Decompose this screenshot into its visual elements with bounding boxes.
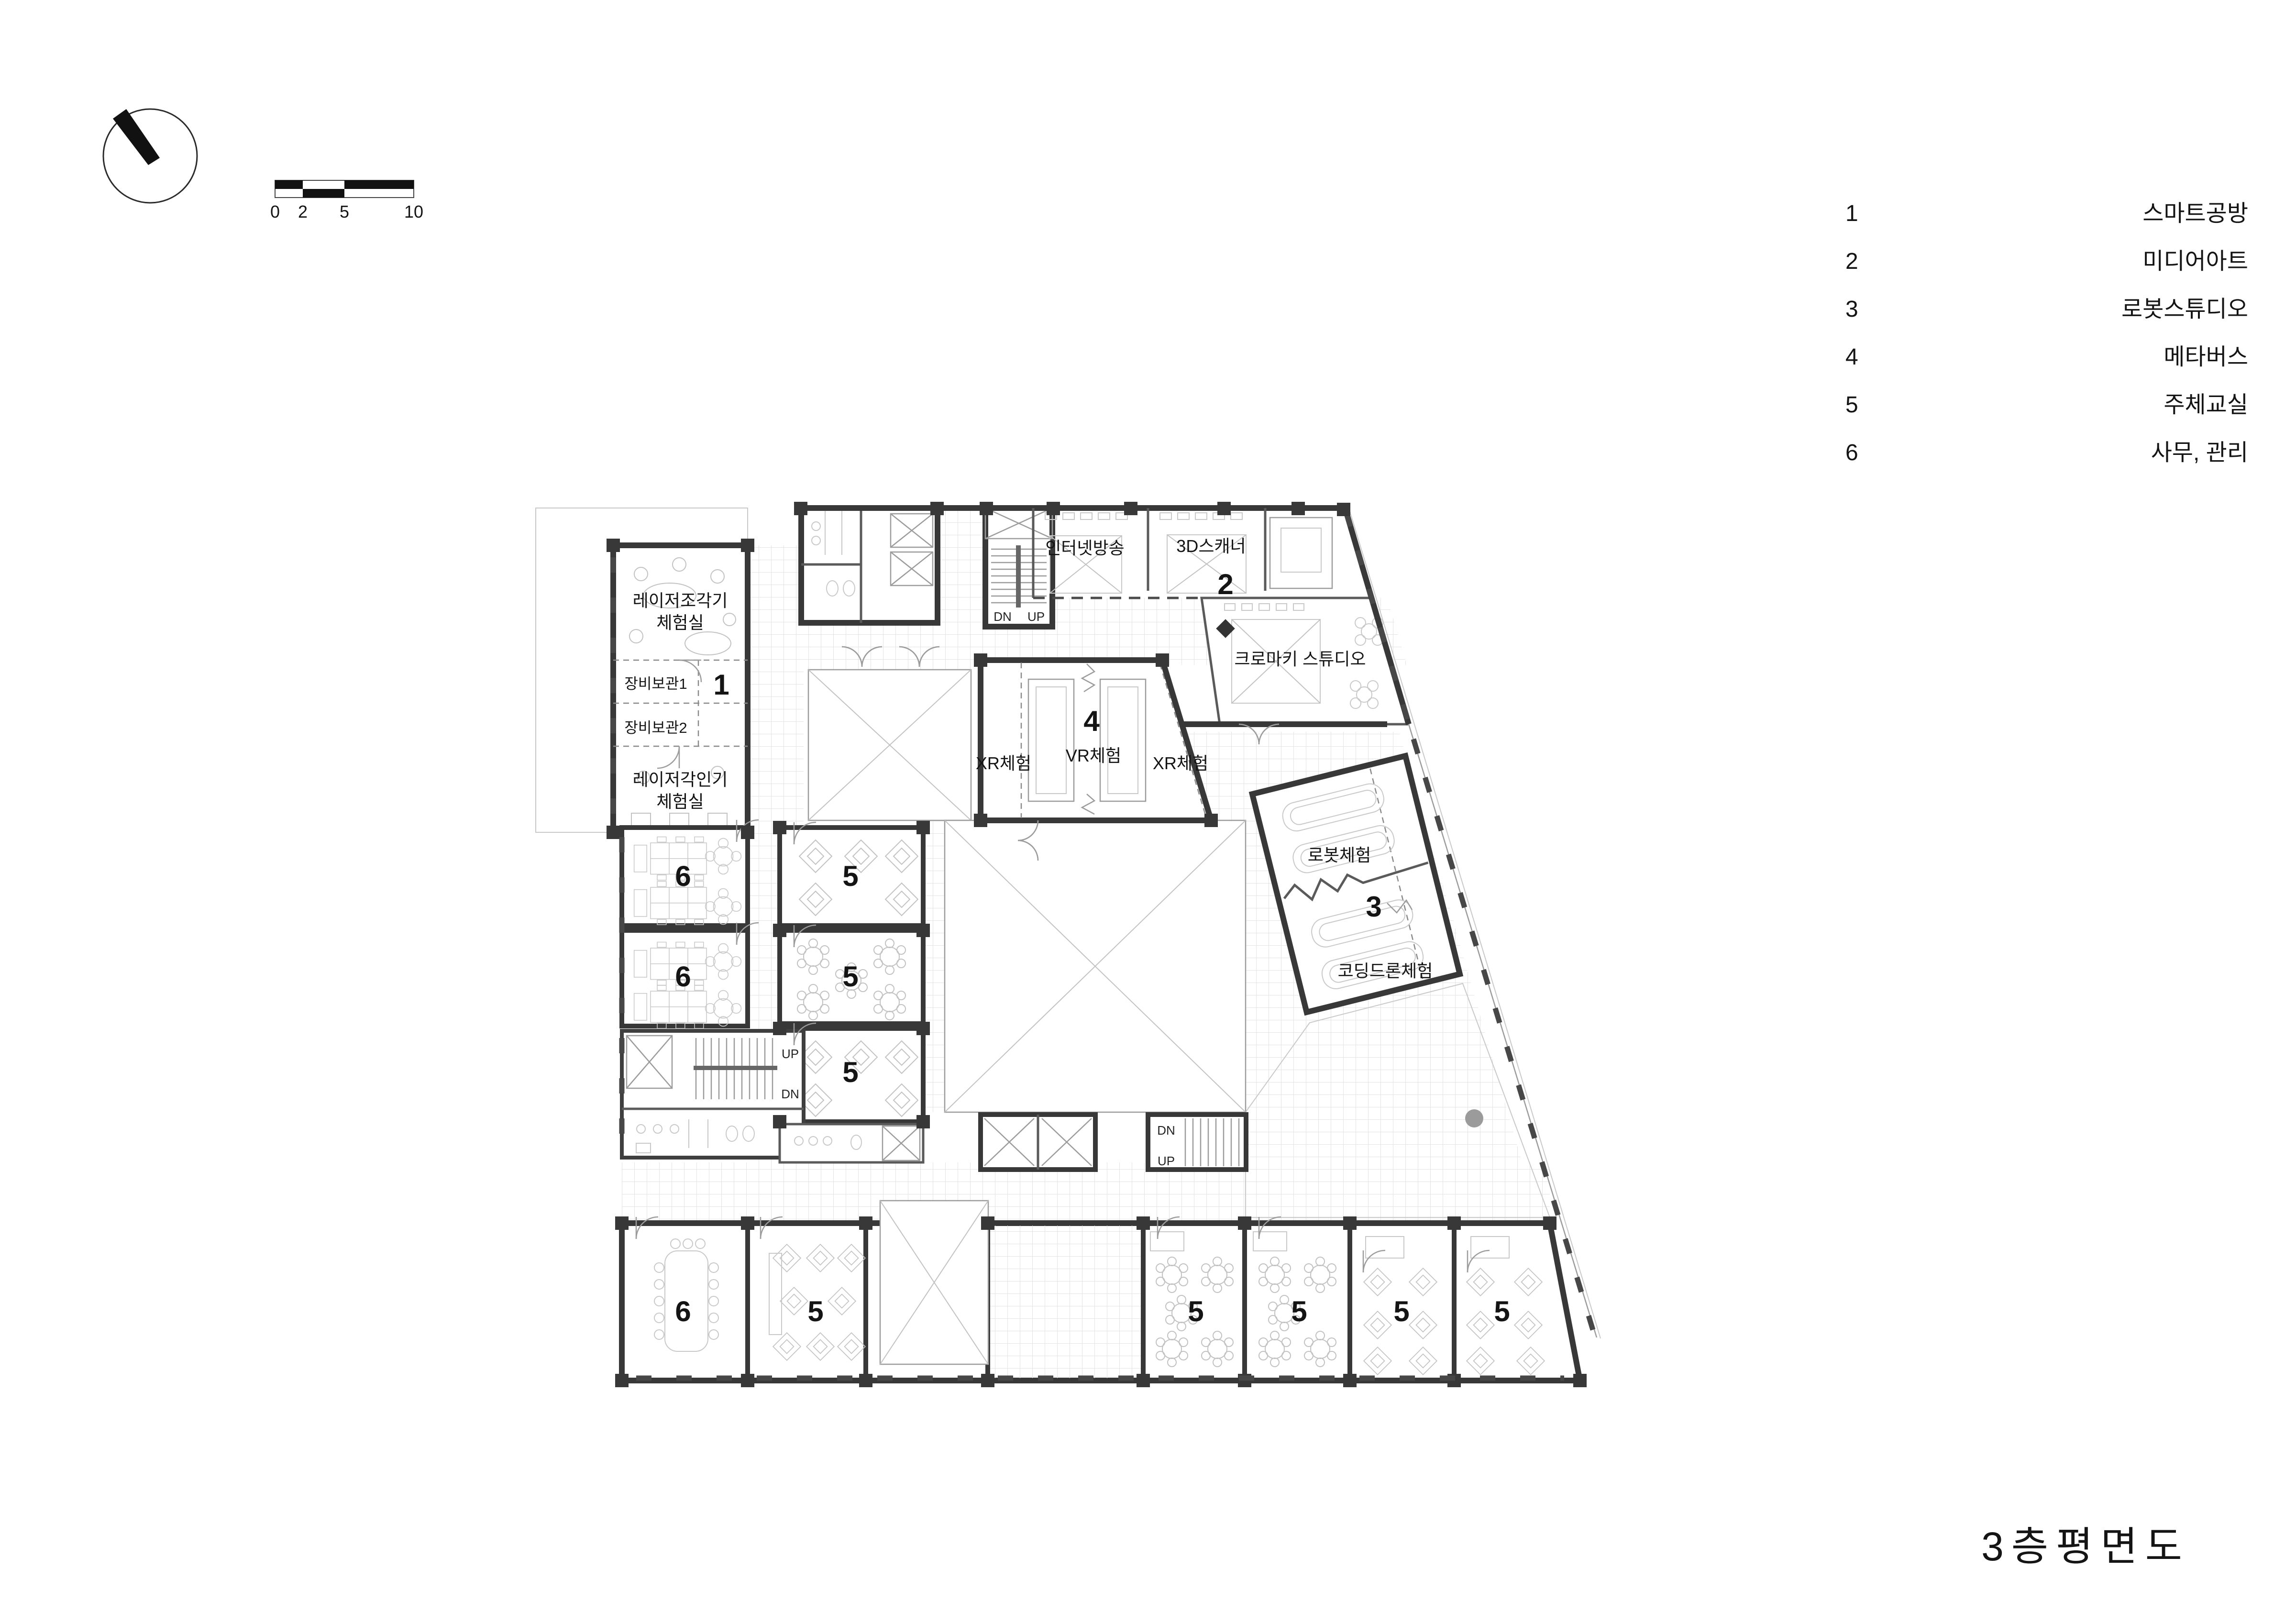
legend-label-6: 사무, 관리 bbox=[2151, 440, 2248, 465]
room-number-3: 3 bbox=[1366, 891, 1381, 923]
room-number-5s4: 5 bbox=[1494, 1295, 1510, 1327]
legend-num-5: 5 bbox=[1845, 392, 1858, 418]
drawing-title: 3층평면도 bbox=[1981, 1524, 2190, 1569]
room-number-5s3: 5 bbox=[1393, 1295, 1409, 1327]
label-xr-left: XR체험 bbox=[976, 753, 1031, 773]
label-3d-scanner: 3D스캐너 bbox=[1176, 536, 1246, 556]
label-equip-storage-2: 장비보관2 bbox=[624, 719, 687, 736]
stair-west-up: UP bbox=[782, 1047, 799, 1061]
stair-west-rail bbox=[694, 1066, 777, 1070]
scale-bar: 0 2 5 10 bbox=[270, 180, 423, 221]
stair-west-block: UP DN bbox=[622, 1031, 804, 1158]
south-wing: 6 5 5 5 bbox=[622, 1201, 1580, 1381]
legend-label-1: 스마트공방 bbox=[2142, 201, 2248, 226]
legend-label-3: 로봇스튜디오 bbox=[2121, 297, 2248, 322]
toilet-strip-mid bbox=[780, 1124, 923, 1162]
room-number-6c: 6 bbox=[675, 1295, 691, 1327]
legend-num-6: 6 bbox=[1845, 440, 1858, 465]
legend-label-5: 주체교실 bbox=[2164, 392, 2248, 418]
metaverse-walls bbox=[981, 660, 1211, 820]
room-number-5m3: 5 bbox=[842, 1056, 858, 1088]
legend-num-4: 4 bbox=[1845, 344, 1858, 370]
scale-tick-5: 5 bbox=[340, 202, 349, 221]
stair-north-rail bbox=[1016, 545, 1021, 608]
room-number-4: 4 bbox=[1083, 705, 1100, 737]
stair-north-dn: DN bbox=[993, 609, 1012, 624]
label-laser-engraver-1: 레이저각인기 bbox=[633, 770, 728, 789]
stair-west-dn: DN bbox=[781, 1087, 799, 1101]
room-number-5s1: 5 bbox=[1188, 1295, 1203, 1327]
room-number-1: 1 bbox=[713, 669, 729, 701]
stair-south: DN UP bbox=[1148, 1115, 1246, 1170]
floor-plan-sheet: 0 2 5 10 1 스마트공방 2 미디어아트 3 로봇스튜디오 4 메타버스… bbox=[0, 0, 2296, 1624]
corridor-core bbox=[938, 508, 985, 623]
scale-tick-0: 0 bbox=[270, 202, 280, 221]
north-arrow-icon bbox=[103, 109, 197, 203]
room-number-5s2: 5 bbox=[1291, 1295, 1307, 1327]
room-number-5m2: 5 bbox=[842, 961, 858, 993]
stair-south-dn: DN bbox=[1157, 1123, 1175, 1138]
stair-north-up: UP bbox=[1027, 609, 1045, 624]
room-number-5s0: 5 bbox=[807, 1295, 823, 1327]
elevators-south bbox=[981, 1115, 1095, 1170]
studio-internet-broadcast: 인터넷방송 bbox=[1045, 513, 1127, 593]
corridor-mid bbox=[923, 820, 945, 1112]
label-robot-experience: 로봇체험 bbox=[1308, 845, 1371, 865]
studio-chroma-key: 크로마키 스튜디오 bbox=[1177, 598, 1407, 724]
label-laser-sculptor-1: 레이저조각기 bbox=[633, 591, 728, 610]
scale-seg-2 bbox=[303, 189, 344, 198]
west-block-walls bbox=[622, 1031, 804, 1158]
label-vr: VR체험 bbox=[1066, 746, 1121, 765]
offices-west: 6 6 bbox=[622, 828, 748, 1028]
label-internet-broadcast: 인터넷방송 bbox=[1045, 538, 1125, 558]
service-core bbox=[801, 508, 938, 623]
skylight-void bbox=[880, 1201, 988, 1364]
equipment-room-ne bbox=[1270, 518, 1332, 588]
label-laser-engraver-2: 체험실 bbox=[656, 792, 704, 811]
legend-num-3: 3 bbox=[1845, 297, 1858, 322]
legend-num-1: 1 bbox=[1845, 201, 1858, 226]
room-number-6a: 6 bbox=[675, 860, 691, 892]
stair-south-up: UP bbox=[1158, 1154, 1175, 1168]
label-xr-right: XR체험 bbox=[1153, 753, 1208, 773]
legend: 1 스마트공방 2 미디어아트 3 로봇스튜디오 4 메타버스 5 주체교실 6… bbox=[1845, 201, 2248, 465]
room-number-2: 2 bbox=[1217, 568, 1233, 600]
label-equip-storage-1: 장비보관1 bbox=[624, 675, 687, 692]
legend-label-4: 메타버스 bbox=[2164, 344, 2248, 370]
stair-north: DN UP bbox=[985, 508, 1052, 627]
room-metaverse: 4 VR체험 XR체험 XR체험 bbox=[976, 660, 1211, 820]
room-smart-workshop: 레이저조각기 체험실 장비보관1 장비보관2 1 레이저각인기 체험실 bbox=[613, 545, 748, 832]
south-wing-gap bbox=[990, 1226, 1141, 1378]
scale-seg-3 bbox=[344, 180, 414, 189]
scale-tick-2: 2 bbox=[298, 202, 308, 221]
scale-seg-1 bbox=[275, 180, 303, 189]
room-number-6b: 6 bbox=[675, 961, 691, 993]
label-chroma-key: 크로마키 스튜디오 bbox=[1235, 649, 1366, 669]
terrace-column-dot bbox=[1465, 1109, 1483, 1127]
legend-label-2: 미디어아트 bbox=[2142, 249, 2248, 274]
room-number-5m1: 5 bbox=[842, 860, 858, 892]
scale-tick-10: 10 bbox=[404, 202, 423, 221]
legend-num-2: 2 bbox=[1845, 249, 1858, 274]
label-coding-drone: 코딩드론체험 bbox=[1338, 961, 1433, 981]
label-laser-sculptor-2: 체험실 bbox=[656, 613, 704, 632]
